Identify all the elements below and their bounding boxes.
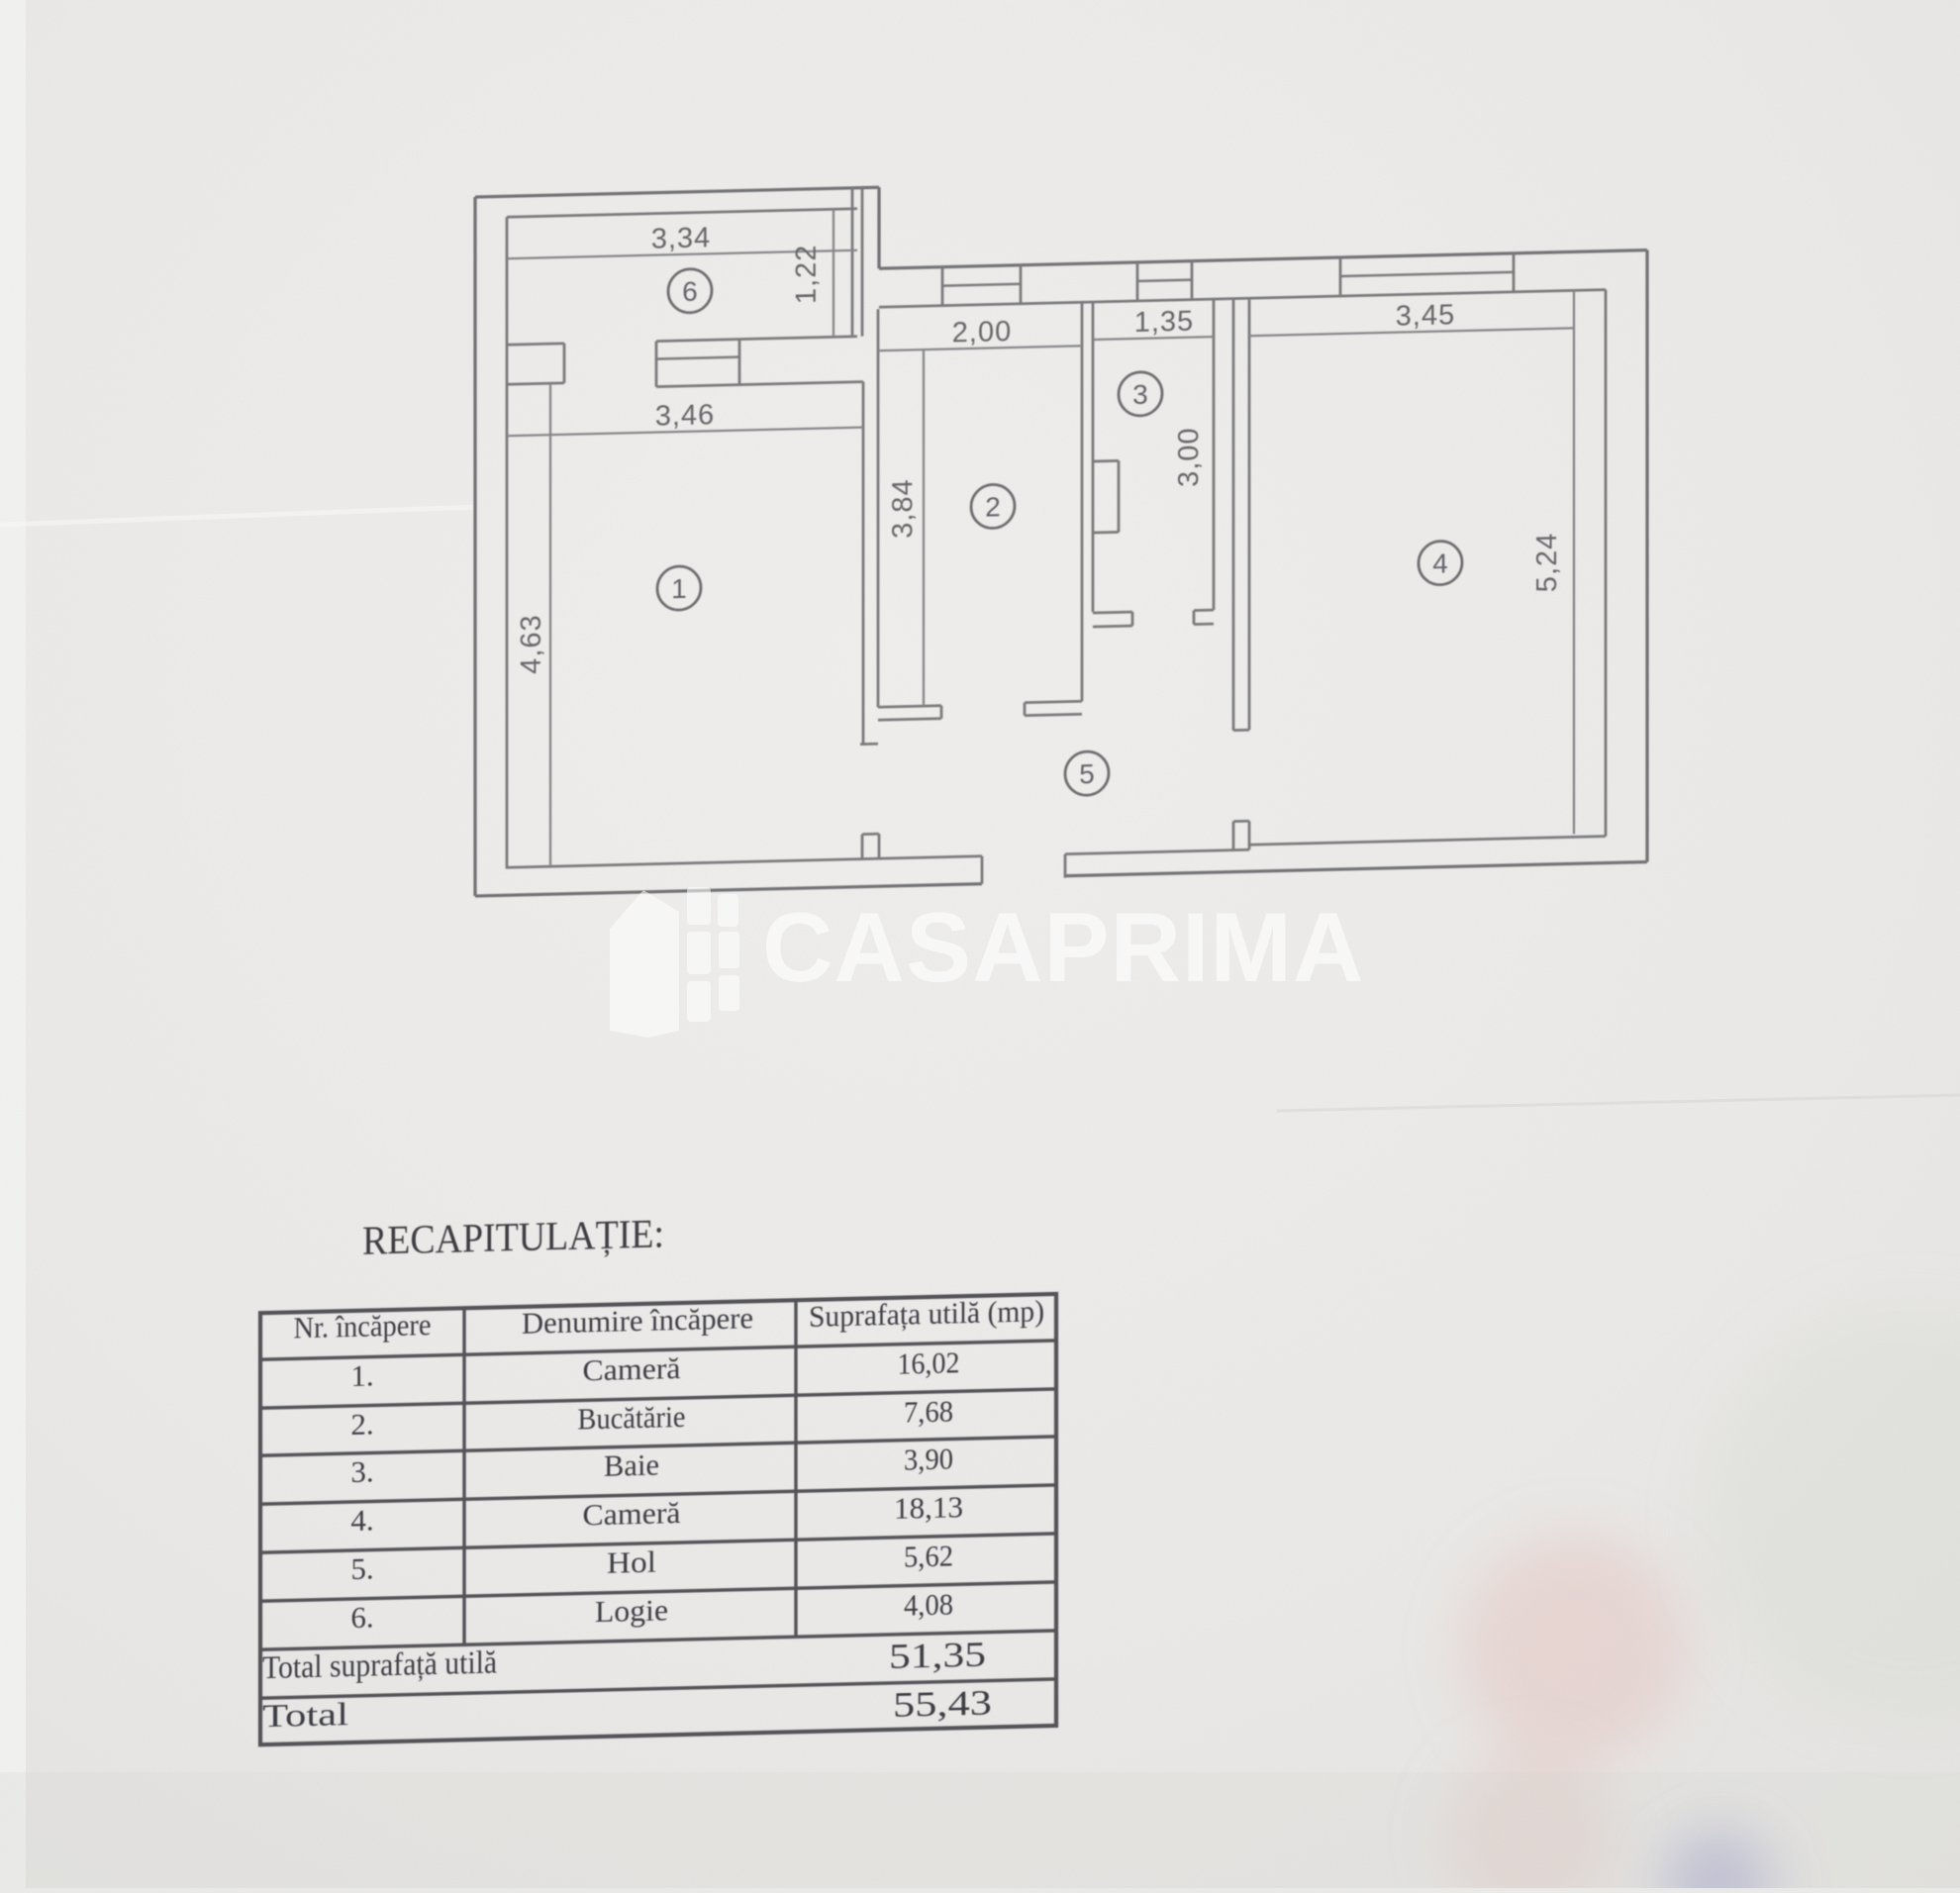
svg-text:1,22: 1,22 — [791, 244, 823, 304]
svg-text:1.: 1. — [350, 1357, 373, 1393]
svg-text:Cameră: Cameră — [582, 1495, 680, 1532]
svg-text:3,34: 3,34 — [651, 222, 711, 254]
svg-text:3: 3 — [1132, 379, 1148, 410]
svg-text:Denumire încăpere: Denumire încăpere — [522, 1300, 753, 1341]
svg-text:51,35: 51,35 — [889, 1635, 986, 1676]
svg-text:2,00: 2,00 — [952, 316, 1012, 349]
svg-text:Bucătărie: Bucătărie — [577, 1399, 685, 1437]
svg-text:Logie: Logie — [595, 1592, 668, 1629]
svg-text:6: 6 — [682, 276, 698, 307]
svg-text:3,46: 3,46 — [655, 399, 715, 432]
svg-text:4: 4 — [1432, 548, 1448, 578]
svg-text:1,35: 1,35 — [1134, 306, 1194, 339]
svg-text:5,62: 5,62 — [904, 1538, 953, 1573]
svg-text:55,43: 55,43 — [893, 1682, 992, 1724]
svg-text:Hol: Hol — [607, 1544, 656, 1580]
svg-text:Suprafața utilă (mp): Suprafața utilă (mp) — [809, 1293, 1044, 1334]
svg-text:3,90: 3,90 — [904, 1441, 953, 1476]
svg-text:5,24: 5,24 — [1531, 532, 1563, 592]
svg-text:Baie: Baie — [604, 1447, 659, 1483]
svg-text:6.: 6. — [350, 1599, 373, 1635]
svg-text:Cameră: Cameră — [582, 1350, 680, 1387]
svg-text:Total: Total — [262, 1697, 348, 1735]
svg-text:3,84: 3,84 — [887, 478, 919, 539]
svg-text:5.: 5. — [350, 1550, 373, 1586]
svg-text:4,63: 4,63 — [516, 614, 547, 674]
svg-text:3.: 3. — [350, 1453, 373, 1489]
svg-text:RECAPITULAȚIE:: RECAPITULAȚIE: — [362, 1210, 664, 1262]
svg-text:3,45: 3,45 — [1396, 299, 1455, 332]
svg-text:16,02: 16,02 — [897, 1345, 959, 1381]
svg-text:2: 2 — [985, 491, 1001, 522]
svg-text:CASAPRIMA: CASAPRIMA — [762, 892, 1365, 1002]
svg-text:3,00: 3,00 — [1173, 427, 1205, 487]
svg-text:18,13: 18,13 — [894, 1489, 963, 1526]
svg-text:5: 5 — [1079, 758, 1095, 789]
svg-text:1: 1 — [671, 573, 687, 604]
svg-text:2.: 2. — [350, 1406, 373, 1442]
svg-text:Nr. încăpere: Nr. încăpere — [294, 1307, 432, 1345]
svg-text:Total suprafață utilă: Total suprafață utilă — [262, 1644, 497, 1686]
svg-text:4,08: 4,08 — [904, 1586, 953, 1622]
svg-text:7,68: 7,68 — [904, 1393, 953, 1429]
svg-text:4.: 4. — [350, 1502, 373, 1538]
